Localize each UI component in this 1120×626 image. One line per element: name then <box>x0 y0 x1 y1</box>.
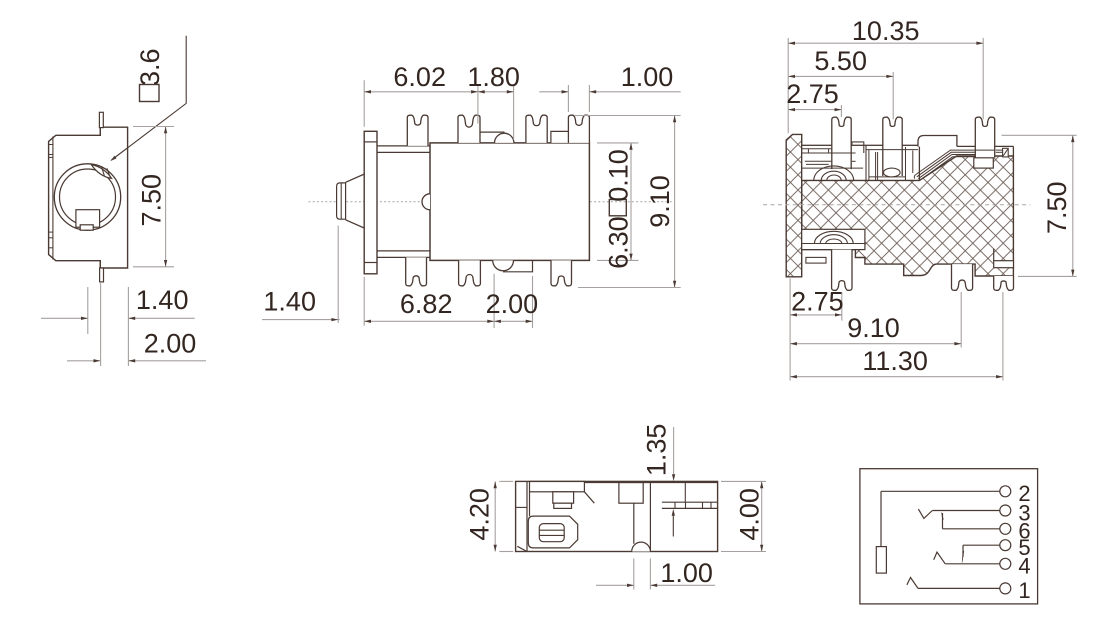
svg-text:6.82: 6.82 <box>400 289 453 319</box>
svg-text:7.50: 7.50 <box>136 174 166 227</box>
svg-text:9.10: 9.10 <box>645 175 675 228</box>
svg-text:1.00: 1.00 <box>660 558 713 588</box>
svg-text:1.40: 1.40 <box>263 287 316 317</box>
svg-text:5.50: 5.50 <box>814 46 867 76</box>
svg-text:2.75: 2.75 <box>791 286 844 316</box>
svg-text:3.6: 3.6 <box>135 48 165 86</box>
svg-text:1.40: 1.40 <box>136 285 189 315</box>
svg-text:4.00: 4.00 <box>734 488 764 541</box>
svg-text:6.30: 6.30 <box>604 216 634 269</box>
svg-text:10.35: 10.35 <box>852 16 920 46</box>
svg-text:9.10: 9.10 <box>847 313 900 343</box>
svg-text:0.10: 0.10 <box>604 149 634 202</box>
svg-text:6.02: 6.02 <box>393 62 446 92</box>
svg-text:11.30: 11.30 <box>862 346 928 376</box>
svg-text:1.00: 1.00 <box>621 62 674 92</box>
svg-text:4: 4 <box>1018 554 1030 579</box>
svg-text:4.20: 4.20 <box>464 488 494 541</box>
svg-text:2.75: 2.75 <box>786 79 839 109</box>
svg-text:1.80: 1.80 <box>467 62 520 92</box>
svg-text:7.50: 7.50 <box>1042 181 1072 234</box>
svg-text:2.00: 2.00 <box>144 329 197 359</box>
svg-text:1: 1 <box>1018 578 1030 603</box>
svg-text:2.00: 2.00 <box>486 289 539 319</box>
svg-text:1.35: 1.35 <box>641 424 671 477</box>
